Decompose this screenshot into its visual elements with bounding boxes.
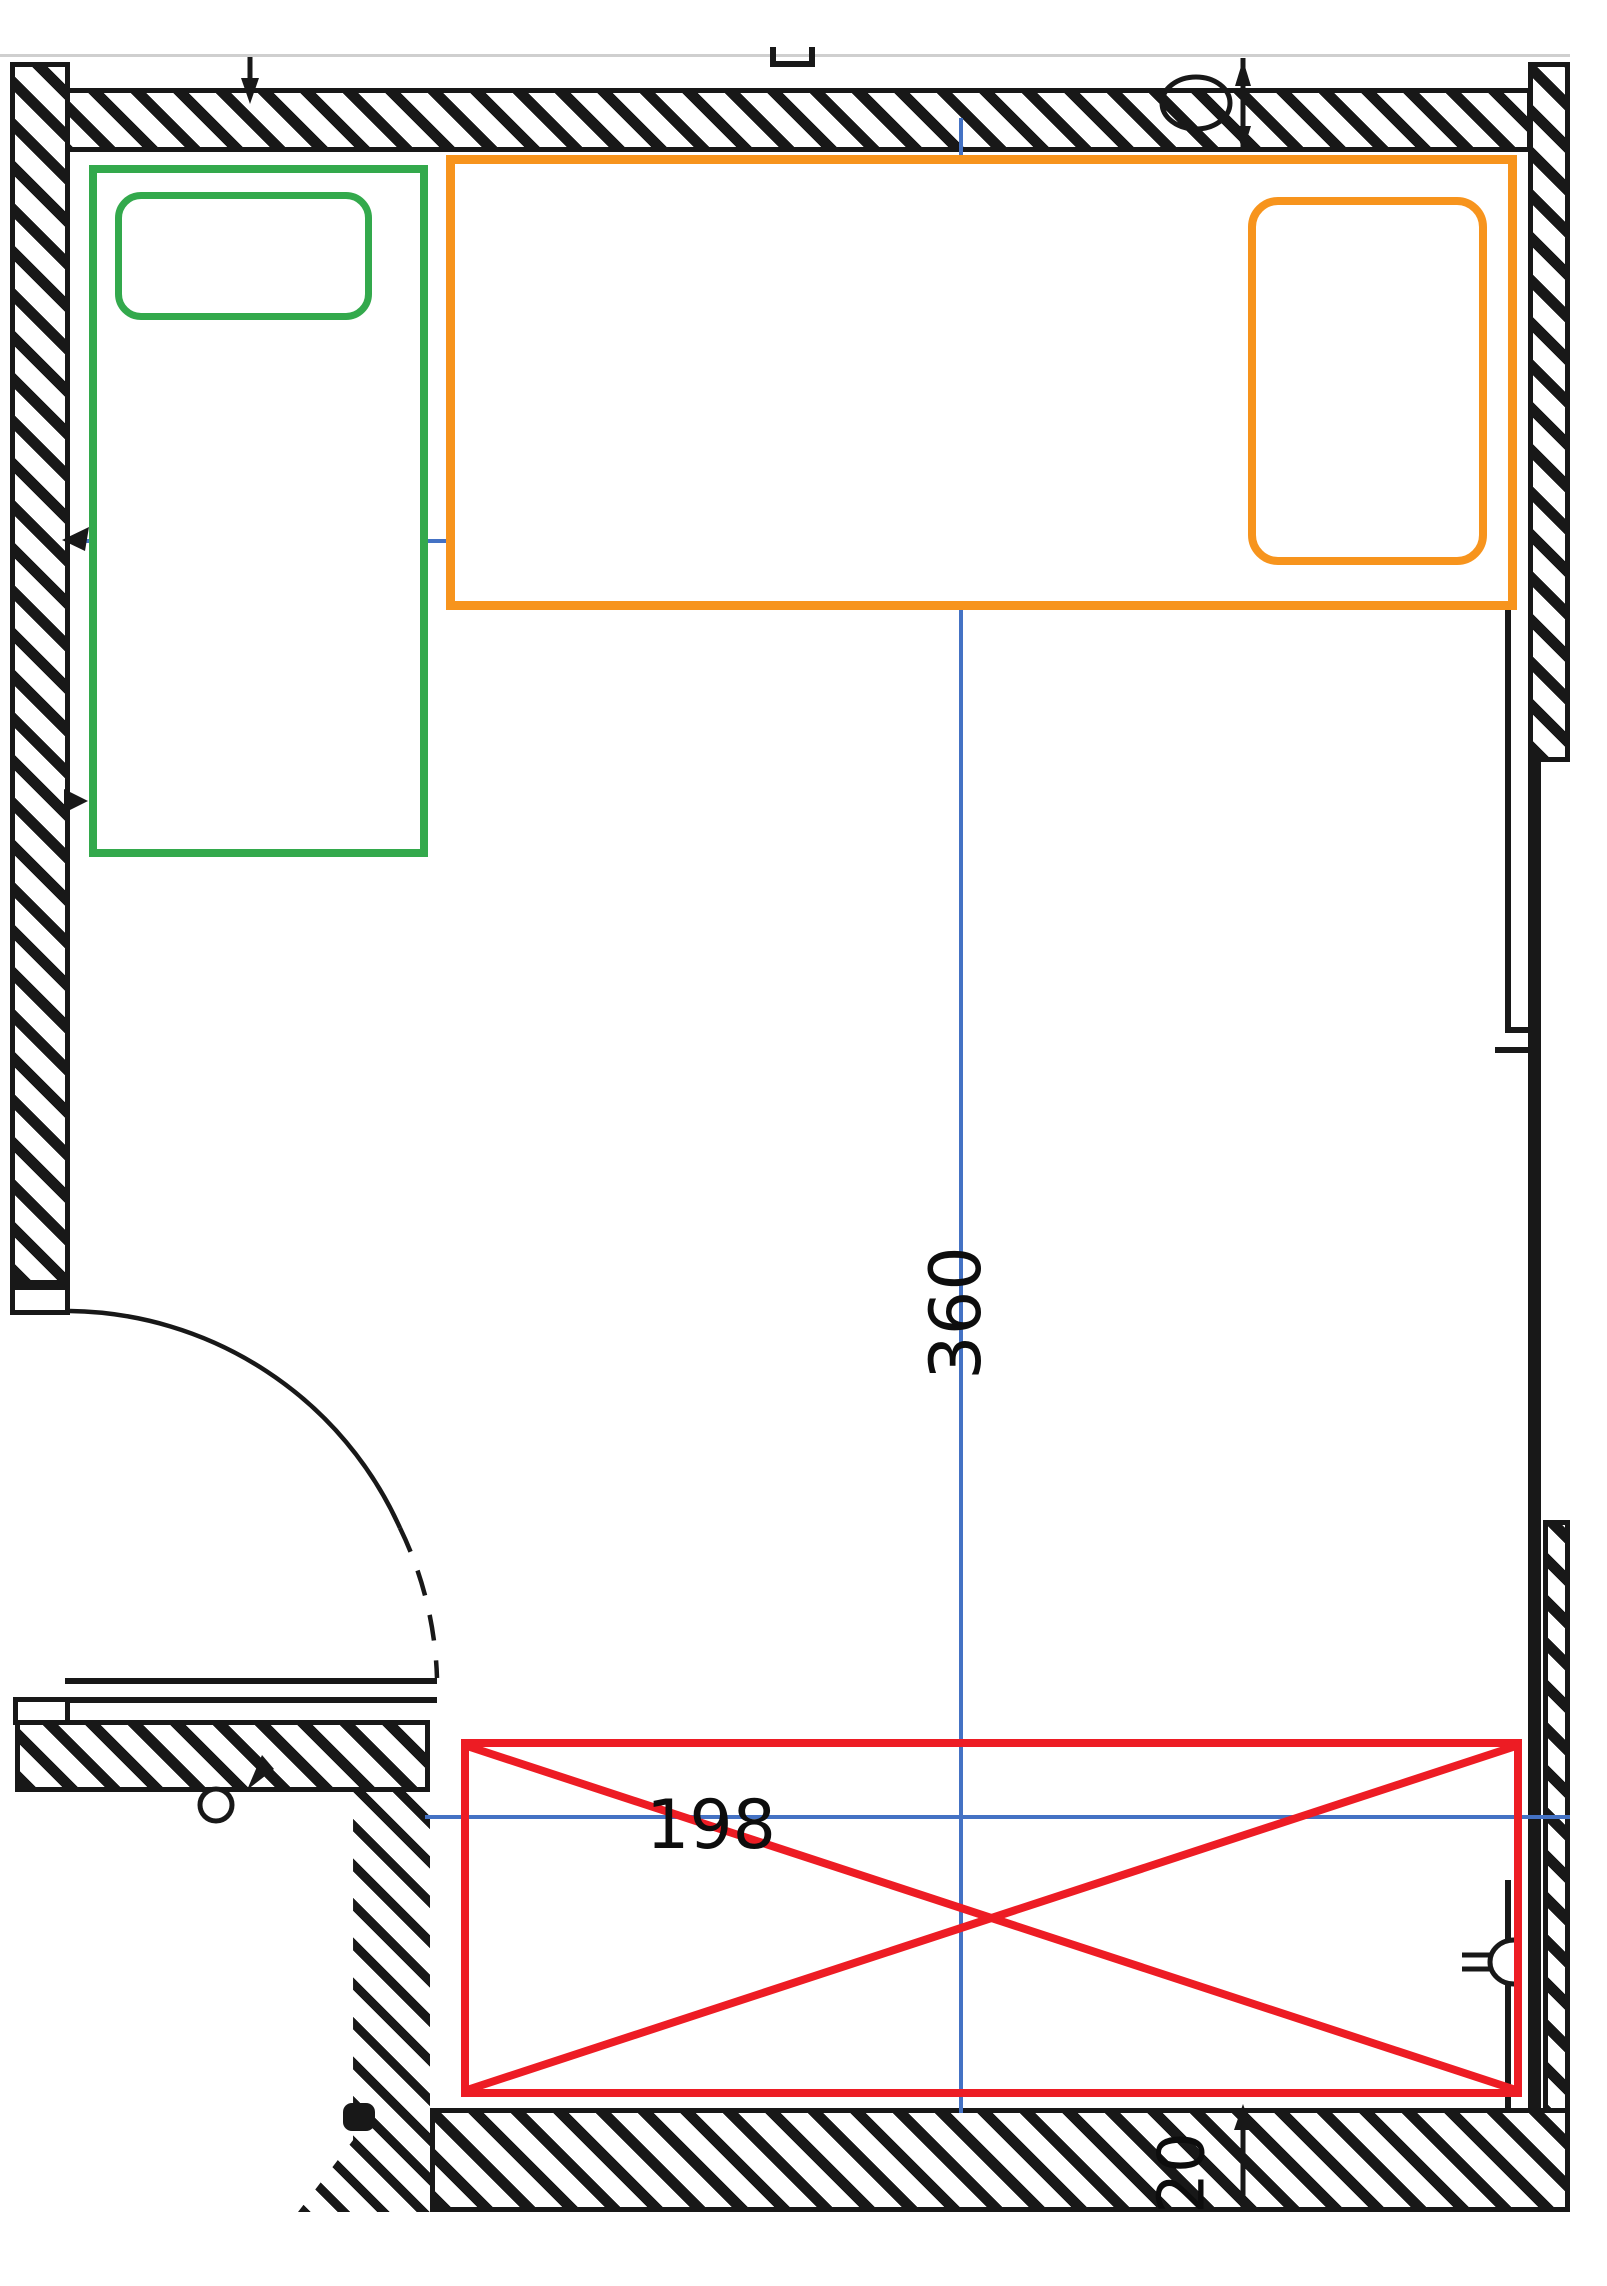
door-swing-arc-solid (70, 1311, 400, 1528)
annotation-overlay (0, 0, 1607, 2286)
dim-label-198: 198 (611, 1788, 811, 1864)
dim-arrow-top-right-down (1235, 126, 1251, 152)
floor-plan-canvas: 360 198 20 (0, 0, 1607, 2286)
window-handle-knob (1490, 1940, 1514, 1984)
cropped-dim-text-glyph (773, 47, 812, 64)
dim-label-20: 20 (1146, 2091, 1220, 2256)
dim-arrow-lowerleft (247, 1755, 274, 1790)
door-stop-stub (343, 2103, 375, 2131)
door-hinge-circle (200, 1789, 232, 1821)
dim-arrow-left-wall (62, 527, 89, 551)
dim-arrow-top-left (241, 78, 259, 104)
dim-arrow-top-right-up (1235, 60, 1251, 86)
wall-nub-left (64, 789, 88, 813)
door-swing-arc-dashed (400, 1528, 437, 1678)
dim-label-360: 360 (916, 1213, 996, 1413)
dim-arrow-bottom (1234, 2104, 1252, 2130)
outlet-symbol-ellipse (1162, 77, 1230, 129)
